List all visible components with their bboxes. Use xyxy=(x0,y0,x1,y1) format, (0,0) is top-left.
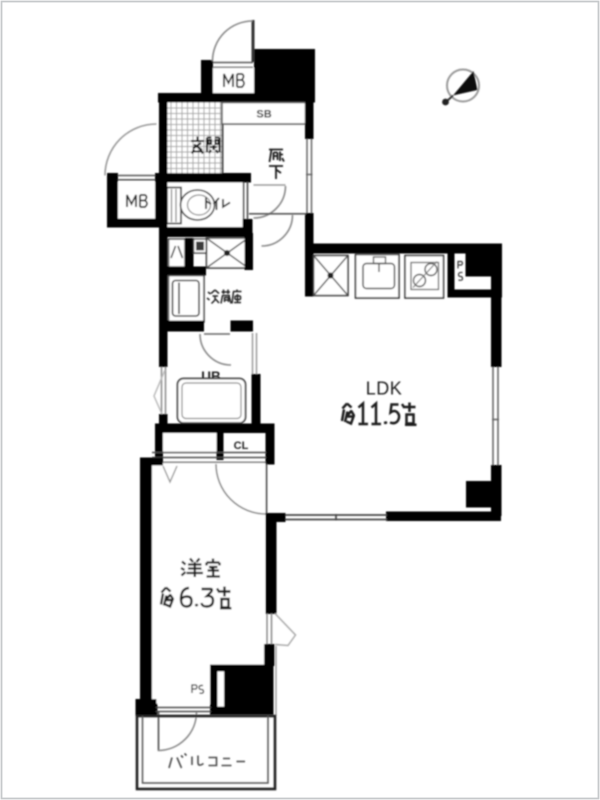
svg-text:CL: CL xyxy=(234,440,249,452)
svg-text:SB: SB xyxy=(256,109,271,121)
svg-text:LDK: LDK xyxy=(366,379,403,399)
